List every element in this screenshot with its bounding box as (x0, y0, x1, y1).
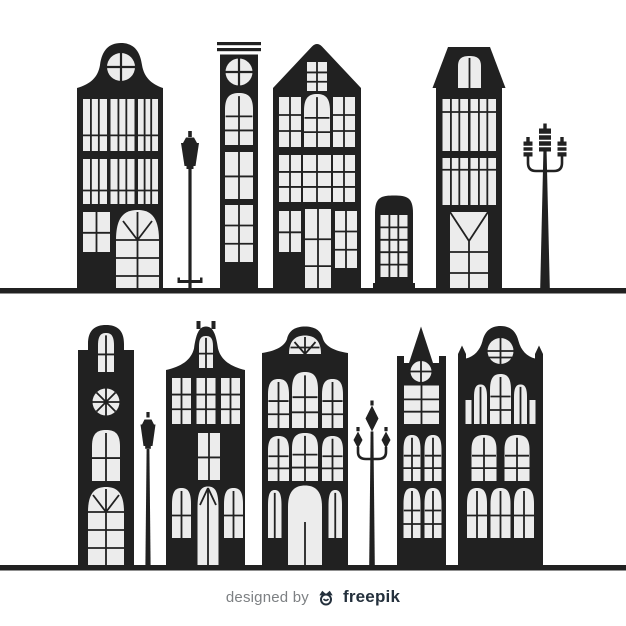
designed-by-text: designed by (226, 589, 309, 606)
spire-clock-tower (397, 327, 446, 568)
ground-line-bottom (0, 565, 626, 571)
bell-gable-house (77, 43, 163, 293)
freepik-brand-text: freepik (343, 587, 400, 607)
phone-booth (373, 196, 415, 289)
buildings-illustration (0, 0, 626, 626)
double-arm-street-lamp (354, 401, 391, 566)
curved-gable-house (262, 327, 348, 568)
street-lamp-top-left (178, 131, 203, 288)
street-lamp-bottom-left (141, 412, 156, 565)
bottom-row (0, 321, 626, 571)
pointed-gable-house (273, 44, 361, 293)
illustration-canvas: designed by freepik (0, 0, 626, 626)
mansard-roof-house (433, 47, 506, 293)
top-row (0, 42, 626, 294)
ground-line-top (0, 288, 626, 294)
striped-tower-house (217, 42, 261, 293)
round-top-tower-house (78, 325, 134, 567)
attribution-footer: designed by freepik (0, 587, 626, 607)
dome-gable-house (458, 326, 543, 567)
triple-street-light (524, 124, 567, 289)
freepik-crown-icon (316, 587, 336, 607)
bell-gable-house-bottom (166, 321, 245, 567)
